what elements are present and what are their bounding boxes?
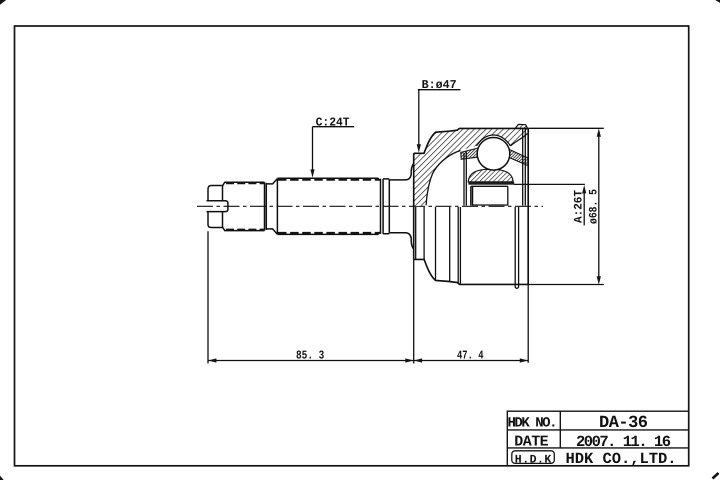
svg-text:HDK CO.,LTD.: HDK CO.,LTD.: [566, 450, 677, 468]
svg-text:H.D.K: H.D.K: [515, 453, 552, 466]
svg-text:DA-36: DA-36: [599, 414, 648, 433]
svg-text:C:24T: C:24T: [316, 116, 350, 130]
svg-text:85. 3: 85. 3: [296, 348, 324, 362]
svg-text:A:26T: A:26T: [572, 190, 585, 223]
svg-text:B:ø47: B:ø47: [422, 78, 457, 92]
svg-text:HDK NO.: HDK NO.: [508, 415, 558, 431]
svg-text:DATE: DATE: [514, 434, 549, 451]
svg-text:47. 4: 47. 4: [457, 348, 484, 362]
svg-text:2007. 11. 16: 2007. 11. 16: [576, 433, 671, 451]
svg-text:ø68. 5: ø68. 5: [588, 189, 601, 224]
